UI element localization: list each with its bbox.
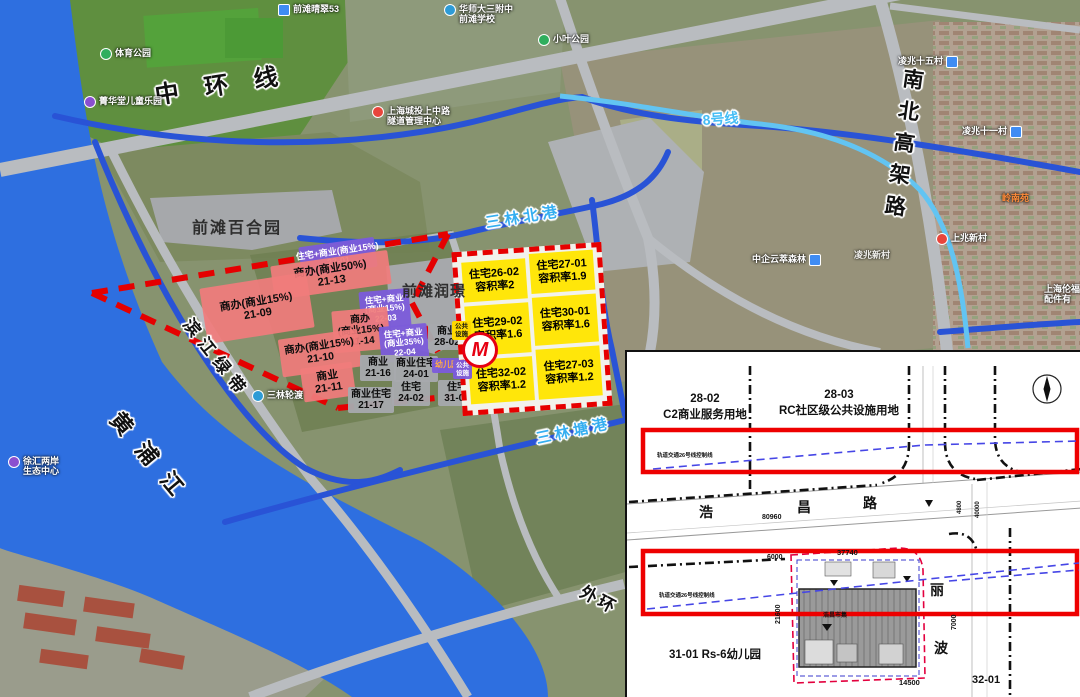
- inset-parcel-28-02: 28-02 C2商业服务用地: [645, 392, 765, 423]
- parcel-far: 容积率2: [475, 279, 515, 295]
- poi-label: 小叶公园: [553, 34, 589, 44]
- poi-parts-company: 上海伦福 配件有: [1044, 284, 1080, 305]
- parcel-use: 住宅: [401, 382, 421, 393]
- poi-icon: [946, 56, 958, 68]
- parcel-21-16: 商业 21-16: [360, 355, 396, 381]
- poi-lingnanyuan: 岭南苑: [1002, 193, 1029, 203]
- parcel-27-03: 住宅27-03 容积率1.2: [535, 345, 602, 399]
- poi-icon: [100, 48, 112, 60]
- poi-lingzhao-15: 凌兆十五村: [898, 56, 958, 68]
- poi-tunnel-center: 上海城投上中路 隧道管理中心: [372, 106, 450, 127]
- poi-xiaoye-park: 小叶公园: [538, 34, 589, 46]
- poi-icon: [252, 390, 264, 402]
- inset-dim-4800: 4800: [957, 501, 963, 514]
- cad-inset-diagram: 28-02 C2商业服务用地 28-03 RC社区级公共设施用地 轨道交通26号…: [625, 350, 1080, 697]
- inset-dim-80960: 80960: [762, 514, 781, 521]
- shanghai-metro-logo-icon: M: [462, 332, 498, 368]
- parcel-21-17: 商业住宅 21-17: [348, 387, 394, 413]
- parcel-26-02: 住宅26-02 容积率2: [461, 258, 528, 302]
- poi-icon: [538, 34, 550, 46]
- poi-ecology-center: 徐汇两岸 生态中心: [8, 456, 59, 477]
- poi-icon: [8, 456, 20, 468]
- parcel-use: 商业住宅: [396, 358, 436, 369]
- poi-hsd-school: 华师大三附中 前滩学校: [444, 4, 513, 25]
- parcel-far: 容积率1.9: [538, 270, 587, 287]
- poi-icon: [1010, 126, 1022, 138]
- planning-map-figure: 住宅+商业(商业15%) 22-01 商办(商业50%) 21-13 商办(商业…: [0, 0, 1080, 697]
- parcel-use: 商业: [368, 357, 388, 368]
- poi-label: 凌兆十一村: [962, 126, 1007, 136]
- poi-label: 三林轮渡: [267, 390, 303, 400]
- parcel-code: 28-02: [645, 392, 765, 408]
- inset-parcel-28-03: 28-03 RC社区级公共设施用地: [749, 388, 929, 419]
- poi-shangzhao-xincun: 上兆新村: [936, 233, 987, 245]
- poi-label: 上海城投上中路: [387, 106, 450, 116]
- parcel-use: RC社区级公共设施用地: [749, 404, 929, 420]
- poi-label: 前滩学校: [459, 14, 495, 24]
- poi-qiantan-qingcui53: 前滩晴翠53: [278, 4, 339, 16]
- parcel-code: 28-03: [749, 388, 929, 404]
- inset-kindergarten-label: 31-01 Rs-6幼儿园: [669, 646, 761, 662]
- poi-icon: [84, 96, 96, 108]
- poi-lingzhao-11: 凌兆十一村: [962, 126, 1022, 138]
- metro-logo-glyph: M: [472, 339, 489, 362]
- inset-road-haochang-char: 浩: [699, 502, 713, 522]
- poi-label: 菁华堂儿童乐园: [99, 96, 162, 106]
- poi-label: 隧道管理中心: [387, 116, 441, 126]
- poi-label: 上兆新村: [951, 233, 987, 243]
- parcel-far: 容积率1.6: [541, 318, 590, 335]
- poi-label: 配件有: [1044, 294, 1071, 304]
- area-label-runjing: 前滩润璟: [402, 280, 466, 301]
- parcel-code: 24-02: [398, 393, 424, 404]
- parcel-far: 容积率1.2: [545, 371, 594, 388]
- inset-rail-control-label-upper: 轨道交通26号线控制线: [657, 451, 713, 459]
- poi-icon: [936, 233, 948, 245]
- parcel-code: 21-11: [314, 380, 343, 396]
- parcel-use: 设施: [456, 370, 469, 377]
- parcel-27-01: 住宅27-01 容积率1.9: [529, 250, 596, 294]
- inset-rail-control-label-lower: 轨道交通26号线控制线: [659, 591, 715, 599]
- inset-dim-6000: 6000: [767, 554, 783, 561]
- parcel-24-02: 住宅 24-02: [392, 380, 430, 406]
- parcel-30-01: 住宅30-01 容积率1.6: [532, 293, 599, 345]
- inset-parcel-32-01: 32-01: [972, 674, 1000, 686]
- inset-road-libo-char: 波: [934, 638, 948, 658]
- parcel-code: 21-16: [365, 368, 391, 379]
- inset-road-haochang-char: 路: [863, 493, 877, 513]
- inset-dim-37740: 37740: [837, 548, 858, 557]
- inset-building-label: 浩昌市集: [823, 610, 847, 619]
- poi-sanlin-ferry: 三林轮渡: [252, 390, 303, 402]
- inset-dim-40000: 40000: [975, 501, 981, 518]
- residential-block-boundary: 住宅26-02 容积率2 住宅27-01 容积率1.9 住宅29-02 容积率1…: [451, 242, 612, 416]
- parcel-code: 21-13: [317, 273, 347, 289]
- poi-children-playground: 菁华堂儿童乐园: [84, 96, 162, 108]
- parcel-use: C2商业服务用地: [645, 408, 765, 424]
- inset-dim-7000: 7000: [951, 614, 958, 630]
- poi-label: 岭南苑: [1002, 193, 1029, 203]
- poi-label: 前滩晴翠53: [293, 4, 339, 14]
- poi-label: 中企云萃森林: [752, 254, 806, 264]
- poi-sports-park: 体育公园: [100, 48, 151, 60]
- poi-zhongqi-forest: 中企云萃森林: [752, 254, 821, 266]
- inset-road-libo-char: 丽: [930, 580, 944, 600]
- poi-label: 凌兆新村: [854, 250, 890, 260]
- parcel-use: 公共: [455, 323, 468, 330]
- metro-line8-label: 8号线: [702, 108, 739, 130]
- inset-road-haochang-char: 昌: [797, 497, 811, 517]
- poi-icon: [372, 106, 384, 118]
- parcel-use: 商业住宅: [351, 389, 391, 400]
- poi-lingzhao-xincun: 凌兆新村: [854, 250, 890, 260]
- inset-dim-21600: 21600: [775, 605, 782, 624]
- inset-dim-14500: 14500: [899, 678, 920, 687]
- poi-icon: [444, 4, 456, 16]
- poi-icon: [278, 4, 290, 16]
- residential-texture: [933, 22, 1080, 355]
- parcel-far: 容积率1.2: [477, 379, 526, 396]
- poi-label: 生态中心: [23, 466, 59, 476]
- parcel-code: 21-17: [358, 400, 384, 411]
- poi-label: 华师大三附中: [459, 4, 513, 14]
- poi-label: 体育公园: [115, 48, 151, 58]
- area-label-baiheyuan: 前滩百合园: [192, 214, 282, 238]
- poi-label: 徐汇两岸: [23, 456, 59, 466]
- poi-label: 上海伦福: [1044, 284, 1080, 294]
- poi-label: 凌兆十五村: [898, 56, 943, 66]
- poi-icon: [809, 254, 821, 266]
- parcel-code: 24-01: [403, 369, 429, 380]
